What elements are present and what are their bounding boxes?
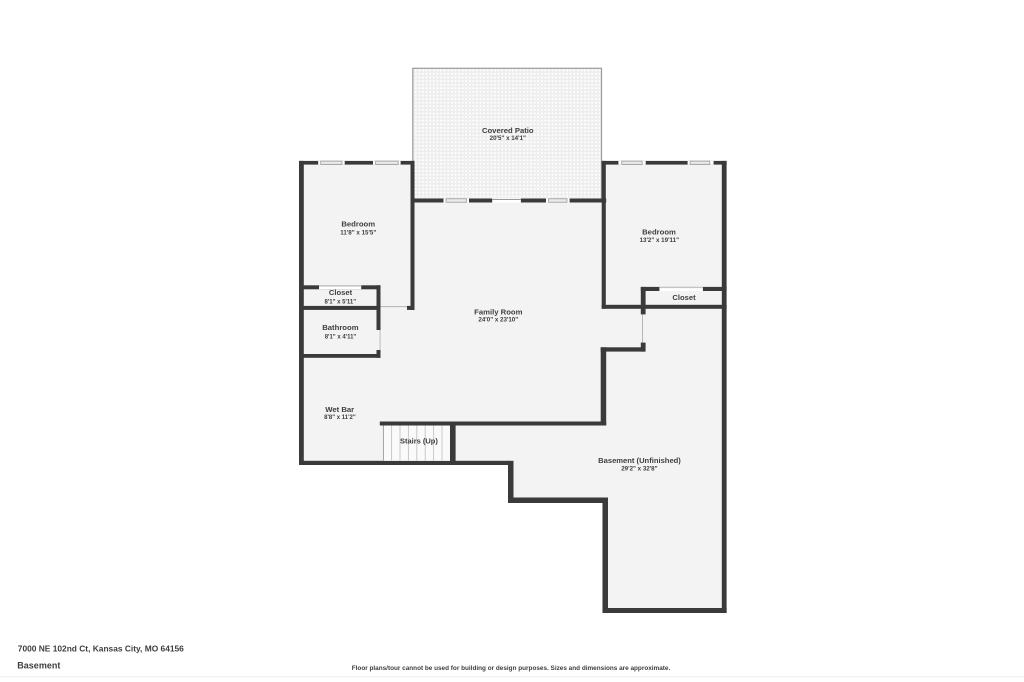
svg-text:Wet Bar: Wet Bar — [325, 405, 354, 414]
svg-text:Covered Patio: Covered Patio — [482, 126, 534, 135]
svg-text:7000 NE 102nd Ct, Kansas City,: 7000 NE 102nd Ct, Kansas City, MO 64156 — [18, 643, 184, 653]
svg-text:13'2" x 19'11": 13'2" x 19'11" — [640, 237, 680, 244]
svg-text:Basement: Basement — [17, 661, 60, 671]
svg-text:Stairs (Up): Stairs (Up) — [400, 437, 438, 446]
svg-text:Bedroom: Bedroom — [642, 227, 676, 236]
svg-text:20'5" x 14'1": 20'5" x 14'1" — [490, 135, 526, 142]
svg-text:Closet: Closet — [672, 293, 696, 302]
svg-text:8'1" x 4'11": 8'1" x 4'11" — [325, 335, 357, 341]
svg-text:11'8" x 15'5": 11'8" x 15'5" — [340, 230, 376, 237]
svg-text:Basement (Unfinished): Basement (Unfinished) — [598, 456, 681, 465]
svg-text:8'8" x 11'2": 8'8" x 11'2" — [324, 415, 356, 421]
svg-text:8'1" x 5'11": 8'1" x 5'11" — [325, 299, 357, 305]
svg-text:Family Room: Family Room — [474, 308, 522, 317]
svg-text:Floor plans/tour cannot be use: Floor plans/tour cannot be used for buil… — [352, 665, 671, 672]
svg-text:Bedroom: Bedroom — [341, 219, 375, 228]
svg-text:Bathroom: Bathroom — [322, 323, 358, 332]
svg-text:24'0" x 23'10": 24'0" x 23'10" — [478, 317, 518, 324]
svg-text:29'2" x 32'8": 29'2" x 32'8" — [621, 465, 657, 472]
svg-text:Closet: Closet — [329, 288, 353, 297]
